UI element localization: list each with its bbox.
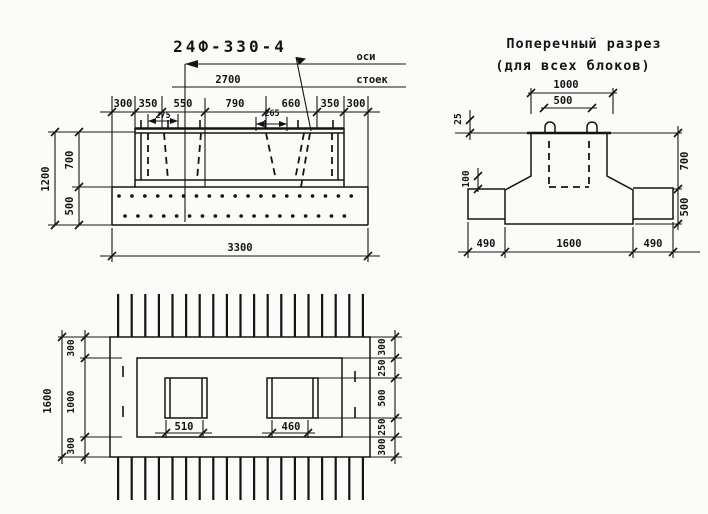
dim-label: 500	[377, 389, 388, 406]
drawing-sheet: 24Ф-330-4 оси стоек 2700 300 350 550 790…	[0, 0, 708, 514]
dim-label: 660	[282, 98, 301, 110]
axis-note-line1: оси	[357, 51, 376, 63]
dim-label: 300	[114, 98, 133, 110]
dim-label: 700	[64, 151, 76, 170]
dim-label: 1600	[556, 238, 581, 250]
plan-view: 510 460 1600 300 1000 300 300 250 500 25…	[42, 316, 402, 479]
socket-left	[165, 378, 207, 418]
dim-label: 350	[139, 98, 158, 110]
dim-label: 300	[66, 437, 77, 454]
dim-label: 1200	[40, 166, 52, 191]
dim-label: 790	[226, 98, 245, 110]
dim-label: 1000	[66, 390, 77, 413]
socket-right	[267, 378, 318, 418]
axis-note-line2: стоек	[356, 74, 388, 86]
dim-label: 460	[282, 421, 301, 433]
block-designation: 24Ф-330-4	[173, 37, 287, 56]
elevation-view: 24Ф-330-4 оси стоек 2700 300 350 550 790…	[40, 37, 406, 262]
dim-label: 250	[377, 418, 388, 435]
dim-label: 700	[679, 152, 691, 171]
section-title-line1: Поперечный разрез	[506, 36, 661, 52]
dim-label: 550	[174, 98, 193, 110]
dim-label: 300	[377, 338, 388, 355]
dim-label: 300	[377, 438, 388, 455]
dim-label: 300	[66, 339, 77, 356]
dim-label: 3300	[227, 242, 252, 254]
dim-label: 275	[155, 111, 170, 121]
dim-label: 350	[321, 98, 340, 110]
dim-label: 1600	[42, 388, 54, 413]
dim-label: 500	[64, 197, 76, 216]
dim-label: 265	[264, 109, 279, 119]
lifting-loop-icon	[545, 122, 597, 133]
dim-label: 490	[477, 238, 496, 250]
dim-label: 1000	[553, 79, 578, 91]
cross-section-view: Поперечный разрез (для всех блоков) 1000…	[453, 36, 700, 258]
dim-label: 100	[461, 170, 472, 187]
section-title-line2: (для всех блоков)	[495, 58, 650, 74]
dim-label: 25	[453, 113, 464, 125]
dim-label: 490	[644, 238, 663, 250]
technical-drawing: 24Ф-330-4 оси стоек 2700 300 350 550 790…	[0, 0, 708, 514]
dim-label: 500	[554, 95, 573, 107]
dim-span-label: 2700	[215, 74, 240, 86]
dim-label: 510	[175, 421, 194, 433]
dim-label: 500	[679, 198, 691, 217]
dim-label: 250	[377, 359, 388, 376]
dim-label: 300	[347, 98, 366, 110]
